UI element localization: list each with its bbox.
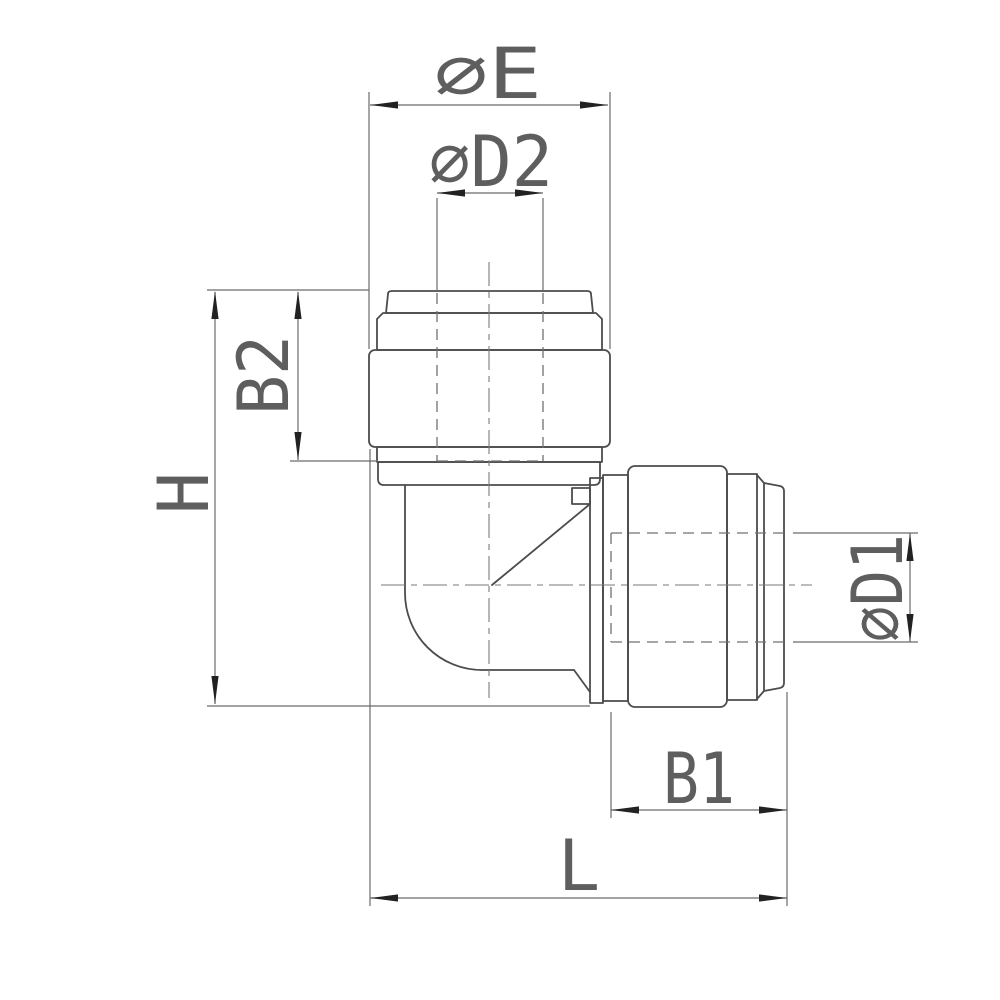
elbow-corner-step <box>572 488 590 504</box>
dimension-d1: ∅D1 <box>793 533 919 642</box>
right-step-ring-outline <box>603 475 628 701</box>
b2-arrow-top <box>294 291 301 319</box>
dimension-d2: ∅D2 <box>429 121 553 290</box>
dim-label-l: L <box>558 825 600 907</box>
right-inner-ring-outline <box>590 478 603 703</box>
dim-label-h: H <box>143 472 225 514</box>
l-arrow-right <box>759 894 787 901</box>
part-right-port <box>590 466 784 707</box>
h-arrow-top <box>211 291 218 319</box>
dim-label-d1: ∅D1 <box>837 534 919 642</box>
right-outer-ring-outline <box>727 474 757 700</box>
technical-drawing: ∅E ∅D2 B2 H <box>0 0 1000 1000</box>
b1-arrow-right <box>759 806 787 813</box>
dimension-b2: B2 <box>207 290 378 461</box>
l-arrow-left <box>370 894 398 901</box>
drawing-canvas: ∅E ∅D2 B2 H <box>0 0 1000 1000</box>
elbow-cone-edge <box>492 504 590 585</box>
dimension-h: H <box>143 291 590 706</box>
e-arrow-right <box>580 101 608 108</box>
b1-arrow-left <box>611 806 639 813</box>
dim-label-b1: B1 <box>663 738 735 820</box>
h-arrow-bottom <box>211 676 218 704</box>
part-elbow-body <box>405 485 590 692</box>
centerlines <box>381 262 812 698</box>
right-collet-top-chamfer <box>757 475 764 483</box>
right-collet-outline <box>764 483 784 691</box>
right-main-band-outline <box>628 466 727 707</box>
elbow-bottom-chamfer <box>574 670 590 692</box>
e-arrow-left <box>370 101 398 108</box>
dimension-l: L <box>370 449 787 907</box>
b2-arrow-bottom <box>294 432 301 460</box>
dim-label-e: ∅E <box>434 33 542 115</box>
dimension-b1: B1 <box>611 692 787 906</box>
dim-label-b2: B2 <box>223 335 305 415</box>
right-collet-bottom-chamfer <box>757 691 764 699</box>
dim-label-d2: ∅D2 <box>429 121 553 203</box>
